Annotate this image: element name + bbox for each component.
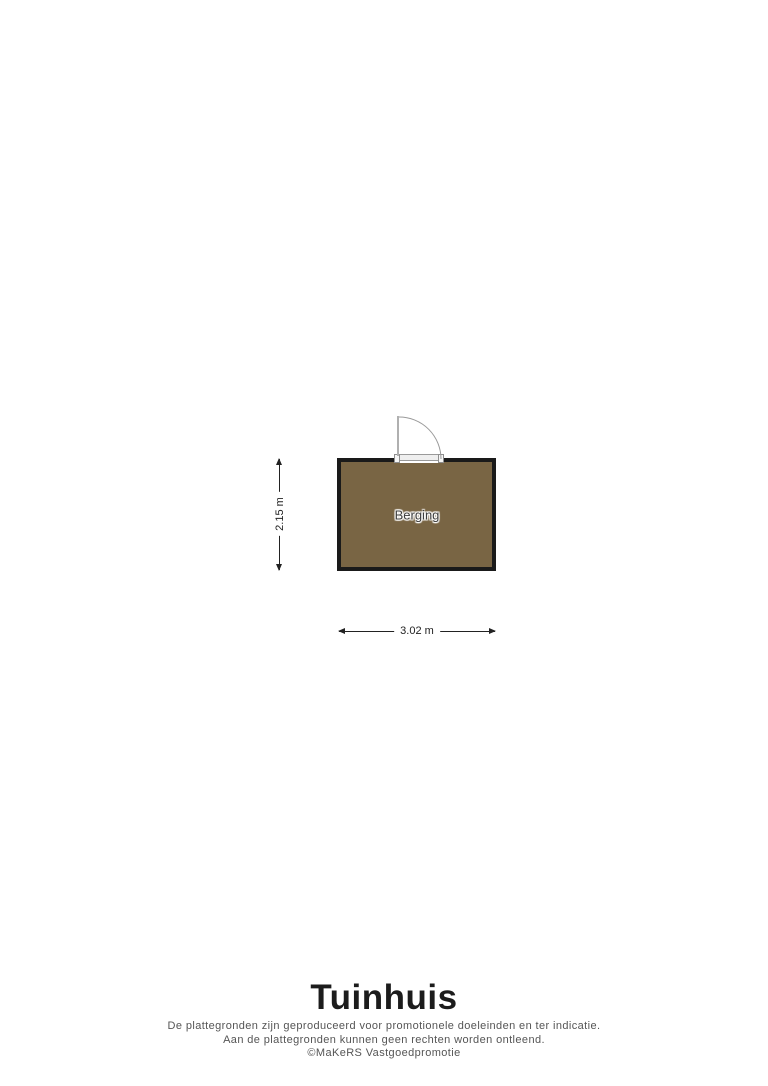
- arrow-left-icon: [338, 628, 345, 634]
- arrow-up-icon: [276, 458, 282, 465]
- disclaimer-line-2: Aan de plattegronden kunnen geen rechten…: [0, 1034, 768, 1048]
- disclaimer-text: De plattegronden zijn geproduceerd voor …: [0, 1020, 768, 1061]
- arrow-down-icon: [276, 564, 282, 571]
- arrow-right-icon: [489, 628, 496, 634]
- door-swing-arc-icon: [398, 416, 442, 460]
- page-title: Tuinhuis: [0, 978, 768, 1018]
- floorplan-canvas: Berging 2.15 m 3.02 m Tuinhuis De platte…: [0, 0, 768, 1086]
- disclaimer-line-3: ©MaKeRS Vastgoedpromotie: [0, 1047, 768, 1061]
- width-dimension-label: 3.02 m: [394, 625, 440, 637]
- room-label: Berging: [395, 508, 440, 523]
- footer: Tuinhuis De plattegronden zijn geproduce…: [0, 978, 768, 1061]
- disclaimer-line-1: De plattegronden zijn geproduceerd voor …: [0, 1020, 768, 1034]
- height-dimension-label: 2.15 m: [274, 492, 286, 536]
